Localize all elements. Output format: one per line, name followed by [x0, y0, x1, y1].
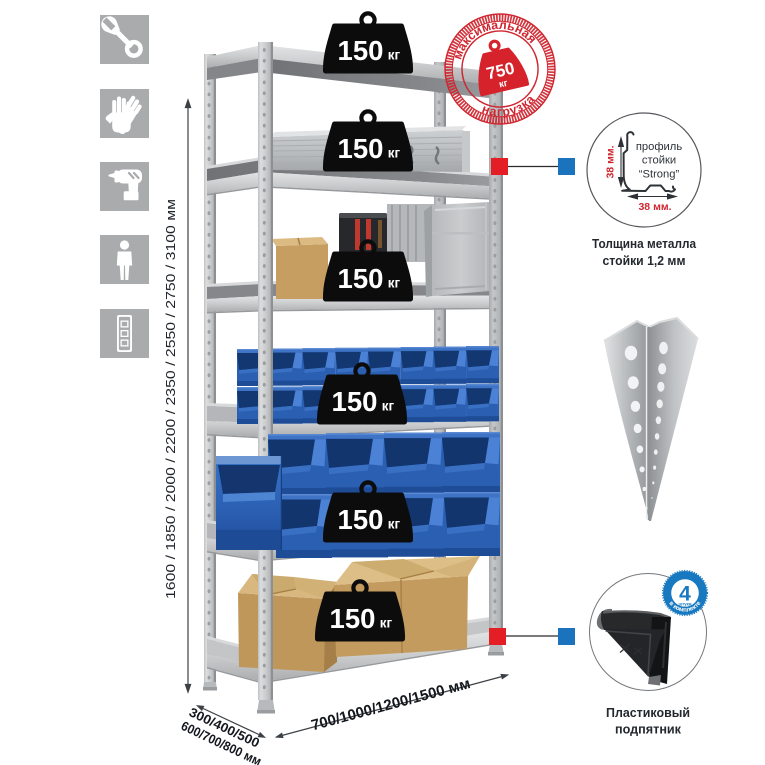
svg-text:кг: кг: [388, 146, 401, 161]
svg-text:700/1000/1200/1500 мм: 700/1000/1200/1500 мм: [309, 675, 472, 734]
svg-text:Пластиковый: Пластиковый: [606, 705, 690, 720]
svg-text:кг: кг: [388, 48, 401, 63]
svg-text:1600 / 1850 / 2000 / 2200 / 23: 1600 / 1850 / 2000 / 2200 / 2350 / 2550 …: [163, 199, 178, 599]
svg-text:150: 150: [332, 386, 378, 417]
svg-text:150: 150: [338, 504, 384, 535]
svg-text:“Strong”: “Strong”: [639, 169, 680, 181]
svg-text:150: 150: [338, 133, 384, 164]
svg-text:38 мм.: 38 мм.: [638, 201, 671, 213]
svg-text:профиль: профиль: [636, 141, 682, 153]
svg-text:подпятник: подпятник: [615, 722, 681, 737]
svg-text:кг: кг: [382, 399, 395, 414]
svg-text:кг: кг: [388, 276, 401, 291]
svg-text:штуки: штуки: [679, 601, 692, 606]
svg-text:кг: кг: [380, 616, 393, 631]
svg-text:кг: кг: [388, 517, 401, 532]
svg-text:150: 150: [338, 263, 384, 294]
svg-text:Толщина металла: Толщина металла: [592, 236, 697, 251]
svg-text:стойки 1,2 мм: стойки 1,2 мм: [603, 253, 686, 268]
svg-text:150: 150: [330, 603, 376, 634]
svg-text:38 мм.: 38 мм.: [605, 145, 617, 178]
svg-text:150: 150: [338, 35, 384, 66]
svg-text:стойки: стойки: [642, 155, 676, 167]
